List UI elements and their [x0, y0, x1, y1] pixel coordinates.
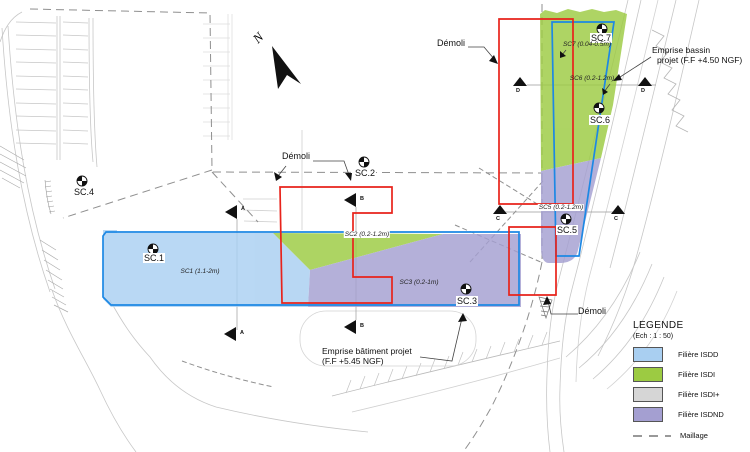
section-triangle-c-right — [611, 205, 625, 214]
section-triangle-a-top — [225, 205, 237, 219]
emprise-batiment-line2: (F.F +5.45 NGF) — [322, 356, 412, 366]
sounding-label-sc3: SC.3 — [456, 296, 478, 306]
legend-label-maillage: Maillage — [680, 431, 708, 440]
sounding-note-sc6: SC6 (0.2-1.2m) — [570, 75, 614, 82]
emprise-bassin-label: Emprise bassin projet (F.F +4.50 NGF) — [652, 45, 742, 65]
sounding-label-sc6: SC.6 — [589, 115, 611, 125]
sounding-label-sc2: SC.2 — [354, 168, 376, 178]
leader-demoli-mid-left — [278, 166, 286, 176]
legend-swatch-isdnd — [633, 407, 663, 422]
section-letter-b-bottom: B — [360, 323, 364, 329]
marker-sc2 — [359, 157, 369, 167]
section-letter-a-bottom: A — [240, 330, 244, 336]
leader-demoli-top — [468, 47, 495, 60]
legend-swatch-isdd — [633, 347, 663, 362]
legend-swatch-isdi — [633, 367, 663, 382]
sounding-note-sc7: SC7 (0.04-0.5m) — [563, 41, 611, 48]
sounding-label-sc5: SC.5 — [556, 225, 578, 235]
section-letter-c-left: C — [496, 216, 500, 222]
legend-label-isdnd: Filière ISDND — [678, 410, 724, 419]
emprise-bassin-line1: Emprise bassin — [652, 45, 710, 55]
legend-scale: (Ech : 1 : 50) — [633, 333, 750, 340]
section-triangle-d-right — [638, 77, 652, 86]
legend-item-maillage: Maillage — [633, 431, 750, 440]
legend-item-isdd: Filière ISDD — [633, 347, 750, 362]
emprise-batiment-label: Emprise bâtiment projet (F.F +5.45 NGF) — [322, 346, 412, 366]
legend: LEGENDE (Ech : 1 : 50) Filière ISDD Fili… — [633, 320, 750, 440]
section-triangle-b-bottom — [344, 320, 356, 334]
marker-sc3 — [461, 284, 471, 294]
marker-sc5 — [561, 214, 571, 224]
legend-item-isdi: Filière ISDI — [633, 367, 750, 382]
marker-sc4 — [77, 176, 87, 186]
emprise-batiment-line1: Emprise bâtiment projet — [322, 346, 412, 356]
section-letter-d-right: D — [641, 88, 645, 94]
emprise-bassin-line2: projet (F.F +4.50 NGF) — [652, 55, 742, 65]
section-letter-d-left: D — [516, 88, 520, 94]
section-triangle-c-left — [493, 205, 507, 214]
demoli-label-middle: Démoli — [282, 152, 310, 161]
sounding-note-sc1: SC1 (1.1-2m) — [180, 268, 219, 275]
section-letter-c-right: C — [614, 216, 618, 222]
section-triangle-d-left — [513, 77, 527, 86]
legend-label-isdi-plus: Filière ISDI+ — [678, 390, 719, 399]
legend-item-isdi-plus: Filière ISDI+ — [633, 387, 750, 402]
demoli-label-top: Démoli — [437, 39, 465, 48]
section-triangle-a-bottom — [224, 327, 236, 341]
site-plan: N Démoli Démoli Démoli Emprise bassin pr… — [0, 0, 750, 452]
sounding-label-sc4: SC.4 — [73, 187, 95, 197]
demoli-label-bottom: Démoli — [578, 307, 606, 316]
section-letter-b-top: B — [360, 196, 364, 202]
sounding-note-sc2: SC2 (0.2-1.2m) — [344, 231, 390, 238]
maillage-dash-icon — [633, 435, 671, 437]
legend-label-isdd: Filière ISDD — [678, 350, 718, 359]
sounding-note-sc5: SC5 (0.2-1.2m) — [538, 204, 584, 211]
north-arrow-icon — [272, 46, 301, 89]
legend-swatch-isdi-plus — [633, 387, 663, 402]
legend-title: LEGENDE — [633, 320, 750, 331]
marker-sc6 — [594, 103, 604, 113]
legend-label-isdi: Filière ISDI — [678, 370, 715, 379]
section-letter-a-top: A — [241, 206, 245, 212]
leader-demoli-mid-right — [313, 161, 349, 175]
section-triangle-b-top — [344, 193, 356, 207]
sounding-label-sc1: SC.1 — [143, 253, 165, 263]
sounding-note-sc3: SC3 (0.2-1m) — [399, 279, 438, 286]
legend-item-isdnd: Filière ISDND — [633, 407, 750, 422]
leader-emprise-batiment — [420, 318, 462, 361]
leader-emprise-bassin — [617, 57, 651, 79]
